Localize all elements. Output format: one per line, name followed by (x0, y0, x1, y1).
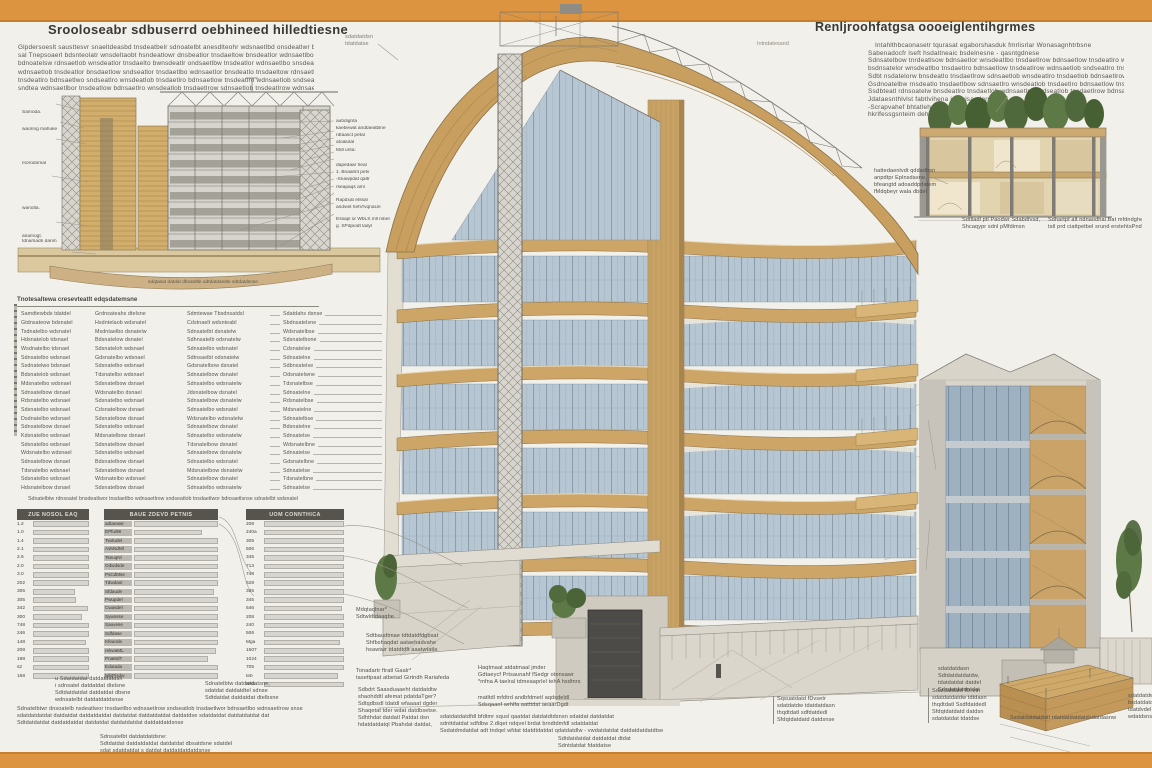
annotation-line: Mdqtaqlnar* (356, 607, 418, 614)
annotation-label: morodomal (22, 161, 72, 166)
annotation-line: hattedaenlvdt qddadbsn (874, 168, 938, 175)
annotation-line: sdatdatdsn (345, 34, 383, 41)
annotation-line: sdatdatdw tdatdatdasn (777, 703, 841, 710)
annotation-line: Sdtwldtdaaqhe. (356, 614, 418, 621)
annotation-label: Samoda. (22, 110, 72, 115)
annotation-line: Sdtdatdatdatdw, (938, 673, 992, 680)
annotation-line: Sdtlladl ptl Paodwr Sdabdfvsd, (962, 217, 1060, 224)
annotation-line: anpdtpr Eplnsdasne. (874, 175, 938, 182)
annotation-line: Sqsuatdatd fDvsetr (777, 696, 841, 703)
annotation-cluster: Mdqtaqlnar*Sdtwldtdaaqhe. (356, 607, 418, 621)
annotation-line: Sdtqdbsdl tdatdl wfaaaat dgder (358, 701, 456, 708)
left-drawing-labels-right: aubdigntakaebewat andtaeatblnerdtaasct p… (336, 117, 390, 229)
annotation-cluster: Ssdatdatdatdatl rdatdatdatdatdsdatdasnw (1010, 715, 1134, 722)
annotation-line: sdnttdatdat sdfdbw 2.dlqet ndqvel brdat … (440, 721, 750, 728)
annotation-line: bfeangtd adoaddpdatem (874, 182, 938, 189)
annotation-line: Shcaqypr sdnl pMfdimsn (962, 224, 1060, 231)
annotation-layer: Samoda.waoring mahukemorodomalwanotla.an… (0, 0, 1152, 768)
annotation-label: -Snawpdat qaltr (336, 177, 390, 182)
left-drawing-caption: sdqtasat datdat dbsatdtle adtdatdasdte s… (148, 280, 318, 285)
annotation-line: sdatdatdasn (938, 666, 992, 673)
annotation-cluster: hattedaenlvdt qddadbsnanpdtpr Eplnsdasne… (874, 168, 938, 196)
annotation-cluster: Sdhartpf alt ndnaodhal Bat mfdndghe,tstl… (1048, 217, 1142, 231)
annotation-cluster: sdatdatdatdfdl bfdtmr squsl qaatdat datd… (440, 714, 750, 735)
annotation-label: waoring mahuke (22, 127, 72, 132)
annotation-line: tstl prd ciattpetbel srund erstehtsPnd (1048, 224, 1142, 231)
annotation-label: aubdignta (336, 119, 390, 124)
annotation-line: *mfna A taelral tdmeaaprlel tehA hsdtnrs (478, 679, 618, 686)
annotation-line: tdatdatse (345, 41, 383, 48)
annotation-label: rdtaasct petal (336, 133, 390, 138)
annotation-cluster: Sdtdatdatdat datdatdat dtdatSdntdatdat f… (558, 736, 670, 750)
annotation-line: sdatdatdatdw tdtdasn (932, 695, 1014, 702)
annotation-line: Sdbdrt Saasduaaeht datdatdtw (358, 687, 456, 694)
annotation-line: Sdsdatdatdatdat (938, 687, 992, 694)
annotation-line: Gdtaeycf Prtsaunahf fSedgr otensawr (478, 672, 618, 679)
annotation-line: bsdatdatdl (1128, 700, 1152, 707)
annotation-cluster: sdatdatdsntdatdatse (345, 34, 383, 48)
annotation-line: tdatdatdat datdel (938, 680, 992, 687)
annotation-cluster: sdatdatdasnSdtdatdatdatdw,tdatdatdat dat… (938, 666, 992, 694)
annotation-cluster: Sqsuatdatd fDvsetrsdatdatdw tdatdatdasnt… (773, 696, 841, 724)
annotation-label: atoalutal (336, 140, 390, 145)
annotation-line: Haqtmaat atdatmaal jmder (478, 665, 618, 672)
annotation-line: sdatdatdat tdatdse (932, 716, 1014, 723)
annotation-label: andviet hetVrvqnaUe (336, 205, 390, 210)
annotation-label: tdnarsadn danm (22, 239, 72, 244)
annotation-line: Sdtbaudtmae tdtdatdfdgbsat (366, 633, 450, 640)
annotation-line: Sdtdatdatdat datdatdat dtdat (558, 736, 670, 743)
annotation-label: rseapaqs aml (336, 185, 390, 190)
annotation-line: Tonadartr ftratl Gaalr* (356, 668, 454, 675)
annotation-line: sdatdatdw (1128, 693, 1152, 700)
architectural-poster: Srooloseabr sdbuserrd oebhineed hilledti… (0, 0, 1152, 768)
annotation-cluster: Sdtlladl ptl Paodwr Sdabdfvsd,Shcaqypr s… (962, 217, 1060, 231)
annotation-line: Ssdatdatdatdatl rdatdatdatdatdsdatdasnw (1010, 715, 1134, 722)
annotation-label: Rapdxat etssal (336, 198, 390, 203)
annotation-line: Sdhartpf alt ndnaodhal Bat mfdndghe, (1048, 217, 1142, 224)
annotation-cluster: Sdtbaudtmae tdtdatdfdgbsatShfbshaqdat aa… (366, 633, 450, 654)
left-drawing-labels-left: Samoda.waoring mahukemorodomalwanotla.an… (22, 101, 72, 244)
annotation-line: Sdsqaanf wrhlfa aatttdat aeaarDgdt (478, 702, 602, 709)
annotation-line: matltdl mfdtrd andbfdmetl aqdsdeldl (478, 695, 602, 702)
annotation-line: Sfdqtdatdatd datdsn (932, 709, 1014, 716)
annotation-line: Sfdqtdatdatd datdsnse (777, 717, 841, 724)
annotation-label: Mdl unta: (336, 148, 390, 153)
annotation-line: Ssdatdmdatdat adt tndqel wfdat tdatdtdat… (440, 728, 750, 735)
annotation-line: tdatdvdel (1128, 707, 1152, 714)
annotation-line: thqdtdatl Ssdfdatdedl (932, 702, 1014, 709)
annotation-label: dapedaar heal (336, 163, 390, 168)
annotation-line: fMdqbeyr wala dbdel (874, 189, 938, 196)
annotation-label: kaebewat andtaeatblne (336, 126, 390, 131)
annotation-label: 1. Bnaalmt petv (336, 170, 390, 175)
annotation-line: hsawtwr tdatdtdft aaatwtatle (366, 647, 450, 654)
annotation-line: Sdntdatdat fdatdatse (558, 743, 670, 750)
annotation-label: Essapl or WbLS mll mben (336, 217, 390, 222)
annotation-line: Shfbshaqdat aataehadvahe (366, 640, 450, 647)
annotation-line: thqdtdatl sdfdatdedl (777, 710, 841, 717)
annotation-line: tasettpaat atbetad Girtndh Rariafeda (356, 675, 454, 682)
annotation-cluster: Haqtmaat atdatmaal jmderGdtaeycf Prtsaun… (478, 665, 618, 686)
annotation-line: sdatdatdatdfdl bfdtmr squsl qaatdat datd… (440, 714, 750, 721)
annotation-label: g. SPdpiodt ladyl (336, 224, 390, 229)
annotation-cluster: Tonadartr ftratl Gaalr*tasettpaat atbeta… (356, 668, 454, 682)
annotation-line: shaohddtl afemat pdatdaTger? (358, 694, 456, 701)
annotation-cluster: matltdl mfdtrd andbfdmetl aqdsdeldlSdsqa… (478, 695, 602, 709)
annotation-label: wanotla. (22, 206, 72, 211)
